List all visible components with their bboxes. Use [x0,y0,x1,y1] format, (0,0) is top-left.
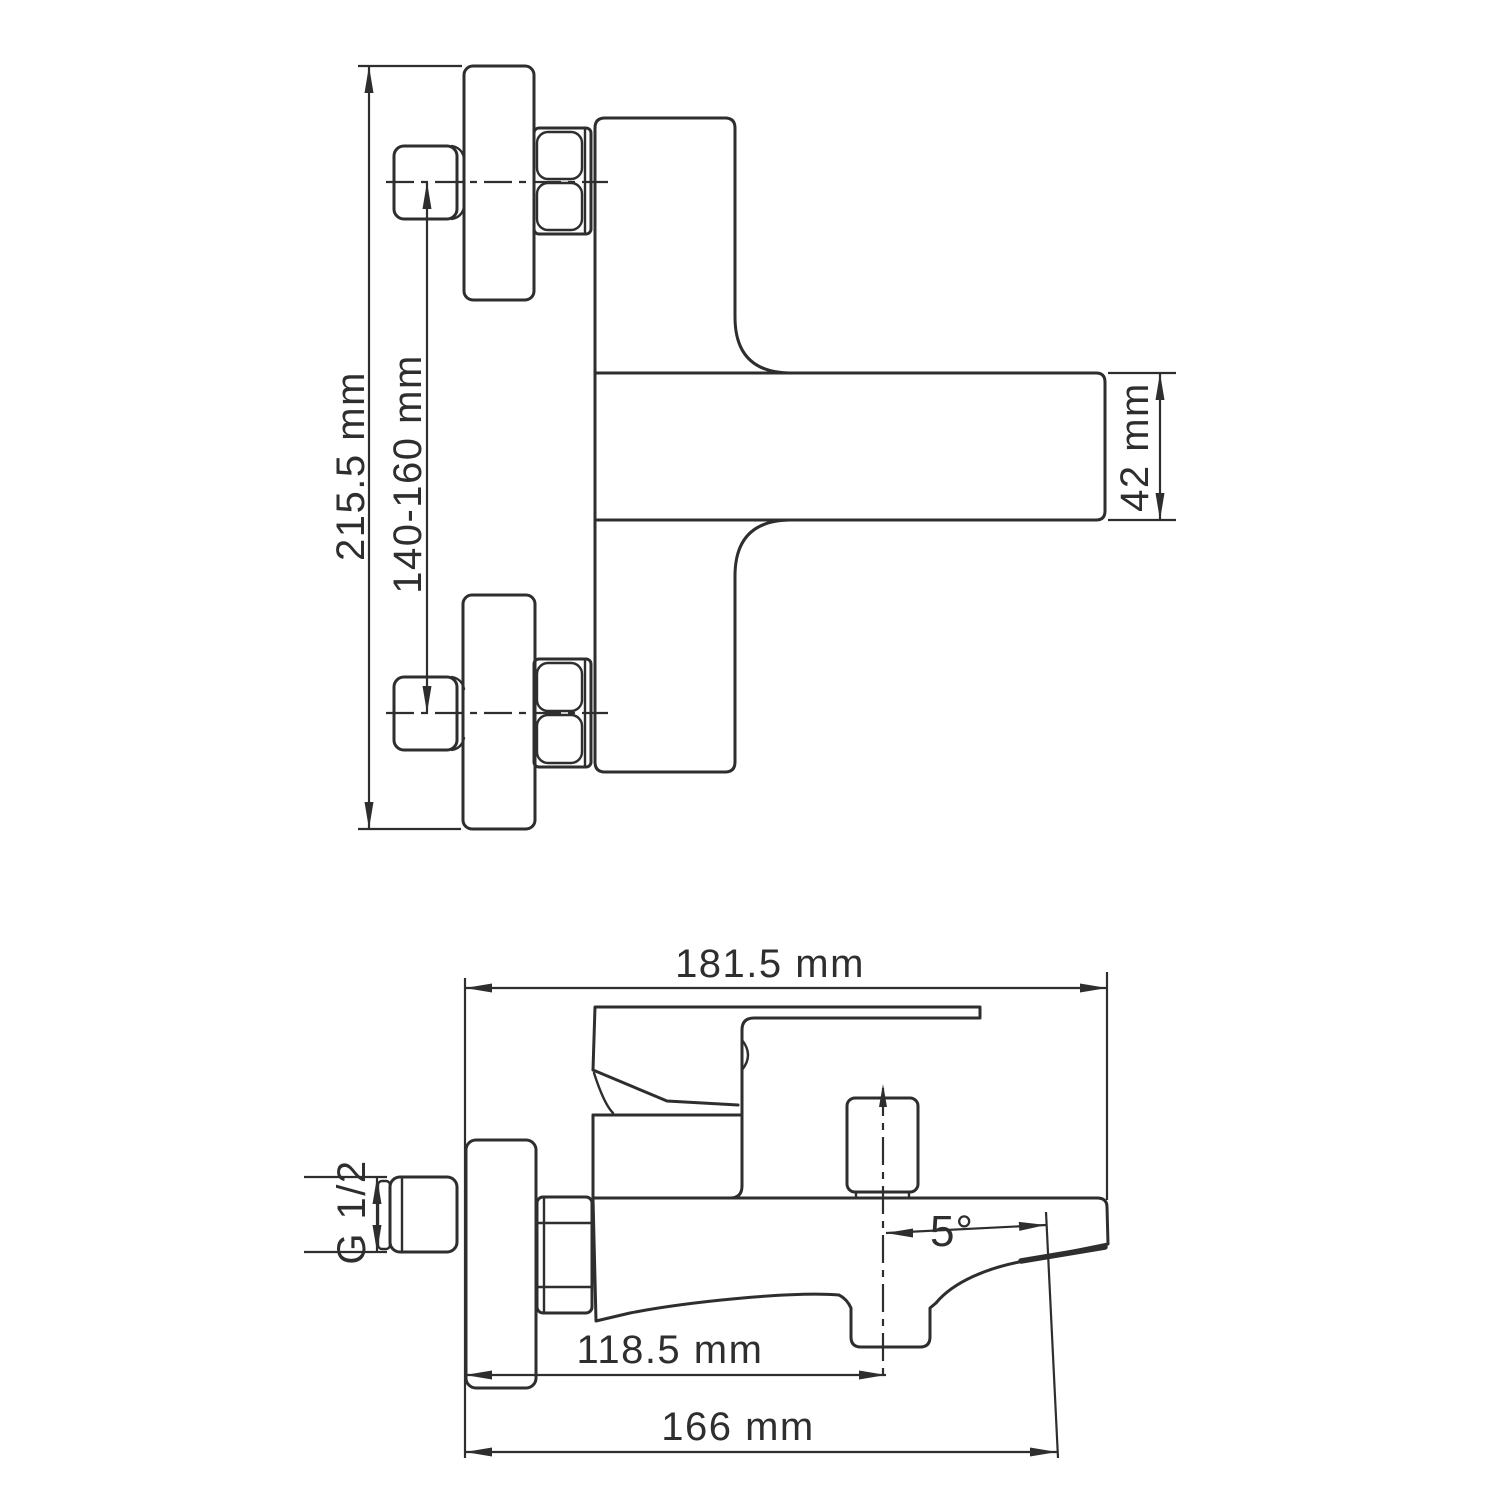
overall-length-label: 181.5 mm [675,942,865,986]
inlet-thread-fitting [378,1177,457,1252]
inlet-spacing-label: 140-160 mm [386,354,430,594]
hex-nut-side [537,1197,592,1313]
technical-drawing-page: 215.5 mm 140-160 mm 42 mm [0,0,1500,1500]
spout-center-dimension: 118.5 mm [465,1328,886,1380]
spout-height-label: 42 mm [1113,382,1157,512]
thread-size-dimension: G 1/2 [304,1159,387,1264]
mixer-dimension-drawing: 215.5 mm 140-160 mm 42 mm [0,0,1500,1500]
handle-underside-edge [593,1070,738,1105]
front-view: 215.5 mm 140-160 mm 42 mm [329,66,1176,829]
cartridge-dome-curve [594,1073,613,1113]
lever-handle [593,1007,980,1198]
centerline-arrow [879,1084,887,1107]
spout-side [593,1198,1108,1347]
spout-tip-label: 166 mm [661,1405,815,1449]
spout-angle-label: 5° [930,1207,974,1256]
spout-tip-edge [1021,1247,1105,1261]
spout-center-label: 118.5 mm [577,1328,764,1372]
thread-size-label: G 1/2 [330,1159,374,1264]
inlet-spacing-dimension: 140-160 mm [386,182,432,713]
spout-height-dimension: 42 mm [1108,373,1176,520]
overall-height-label: 215.5 mm [329,371,373,561]
side-view: 181.5 mm G 1/2 5° 118.5 mm [304,942,1108,1458]
wall-plate-side [466,1140,536,1388]
spout-angle-dimension: 5° [886,1207,1058,1458]
mixer-body-front [595,118,1105,772]
spout-tip-dimension: 166 mm [465,1405,1057,1457]
